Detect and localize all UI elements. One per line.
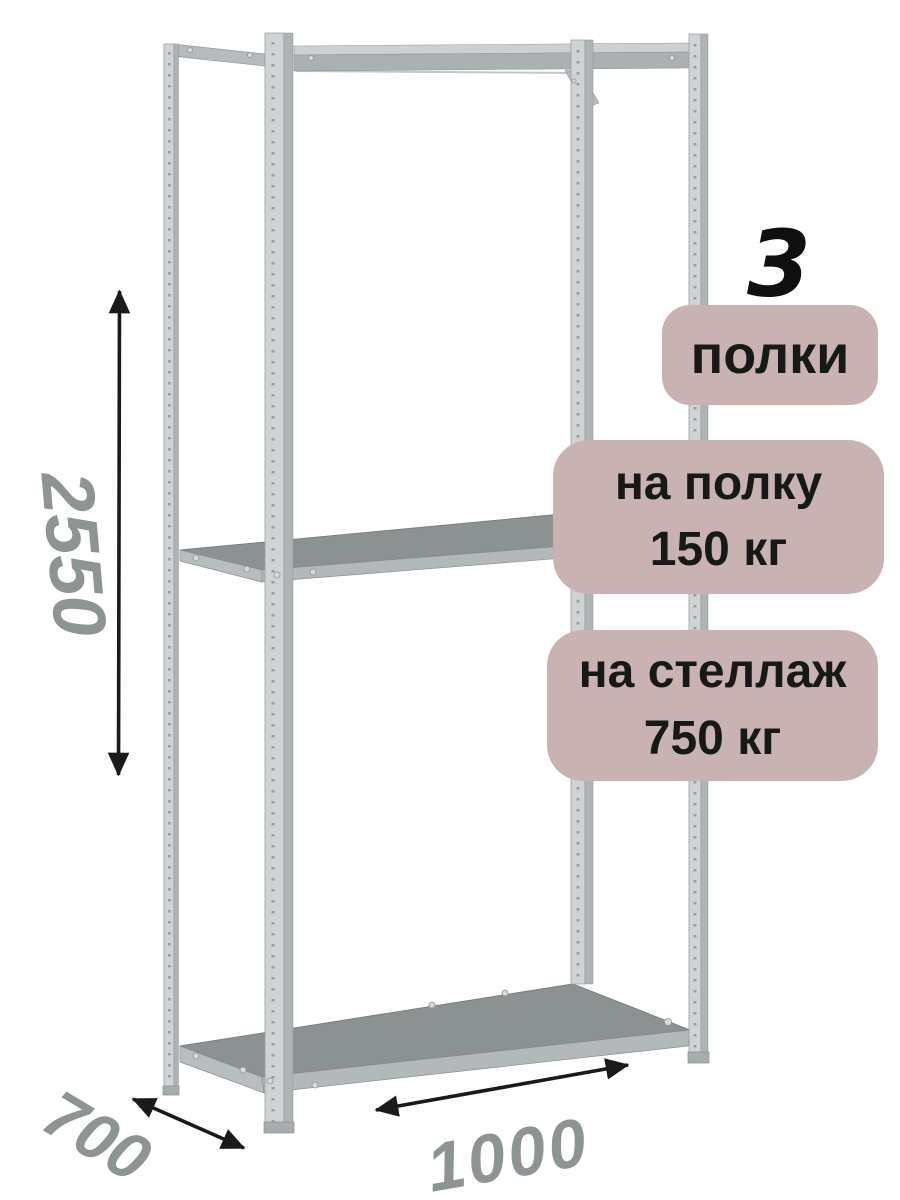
top-back-beam xyxy=(296,71,585,73)
rack-load-badge: на стеллаж 750 кг xyxy=(547,630,878,781)
rack-illustration xyxy=(0,0,900,1200)
foot-front-right xyxy=(688,1052,709,1063)
shelf-load-line1: на полку xyxy=(553,451,884,517)
shelf-load-badge: на полку 150 кг xyxy=(553,440,884,594)
foot-back-left xyxy=(163,1086,179,1095)
shelf-count-badge: полки xyxy=(662,305,878,405)
rack-load-line1: на стеллаж xyxy=(547,639,878,705)
product-image: 2550 700 1000 3 полки на полку 150 кг на… xyxy=(0,0,900,1200)
shelf-count-number: 3 xyxy=(747,211,811,318)
upright-back-left xyxy=(163,44,179,1095)
rack-load-line2: 750 кг xyxy=(547,706,878,772)
upright-front-left xyxy=(264,33,294,1133)
shelf-load-line2: 150 кг xyxy=(553,517,884,583)
top-beam-face xyxy=(294,52,690,71)
height-arrow-icon xyxy=(119,291,120,775)
height-dimension-label: 2550 xyxy=(24,468,123,639)
foot-front-left xyxy=(264,1122,294,1133)
shelf-count-label: полки xyxy=(662,324,878,386)
